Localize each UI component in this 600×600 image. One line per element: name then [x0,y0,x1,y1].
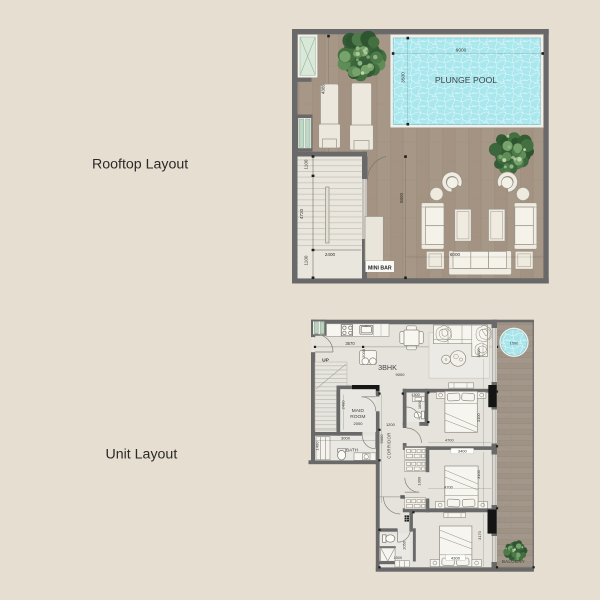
svg-text:4700: 4700 [444,485,453,490]
svg-text:6000: 6000 [450,252,461,257]
svg-text:BATH: BATH [346,448,358,453]
svg-text:2050: 2050 [403,541,407,549]
svg-text:Rooftop Layout: Rooftop Layout [92,157,188,173]
svg-text:BALCONY: BALCONY [502,559,525,564]
svg-text:2000: 2000 [354,421,364,426]
svg-text:9000: 9000 [396,372,406,377]
svg-text:1400: 1400 [315,441,320,451]
svg-text:3170: 3170 [477,530,482,539]
svg-text:3400: 3400 [476,348,481,358]
svg-text:4300: 4300 [451,555,461,560]
svg-text:5000: 5000 [379,434,384,444]
svg-text:1500: 1500 [510,341,519,346]
svg-text:3500: 3500 [401,72,407,83]
svg-text:4700: 4700 [445,438,454,443]
svg-text:1100: 1100 [304,255,309,265]
svg-text:1200: 1200 [386,422,396,427]
svg-text:1500: 1500 [394,556,402,560]
svg-text:1300: 1300 [411,392,420,397]
svg-text:3100: 3100 [476,412,481,421]
svg-text:5800: 5800 [399,192,404,203]
svg-text:MAID: MAID [352,408,365,414]
svg-text:MINI BAR: MINI BAR [368,265,392,271]
svg-text:PLUNGE POOL: PLUNGE POOL [435,75,497,85]
svg-text:3100: 3100 [476,469,481,478]
svg-text:CORRIDOR: CORRIDOR [387,432,392,459]
svg-text:3BHK: 3BHK [378,363,397,372]
svg-text:4720: 4720 [299,208,304,219]
svg-text:6000: 6000 [456,48,467,54]
svg-text:3400: 3400 [458,449,468,454]
svg-text:3000: 3000 [341,436,351,441]
svg-text:1600: 1600 [417,400,422,409]
svg-text:4385: 4385 [320,83,325,94]
svg-text:2000: 2000 [361,348,366,358]
svg-text:3570: 3570 [345,341,355,346]
svg-text:2400: 2400 [325,252,336,257]
svg-text:2400: 2400 [340,400,345,410]
svg-text:Unit Layout: Unit Layout [106,447,178,463]
svg-text:1100: 1100 [304,159,309,169]
svg-text:UP: UP [322,357,330,363]
svg-text:1300: 1300 [416,476,421,486]
svg-text:ROOM: ROOM [350,414,365,420]
